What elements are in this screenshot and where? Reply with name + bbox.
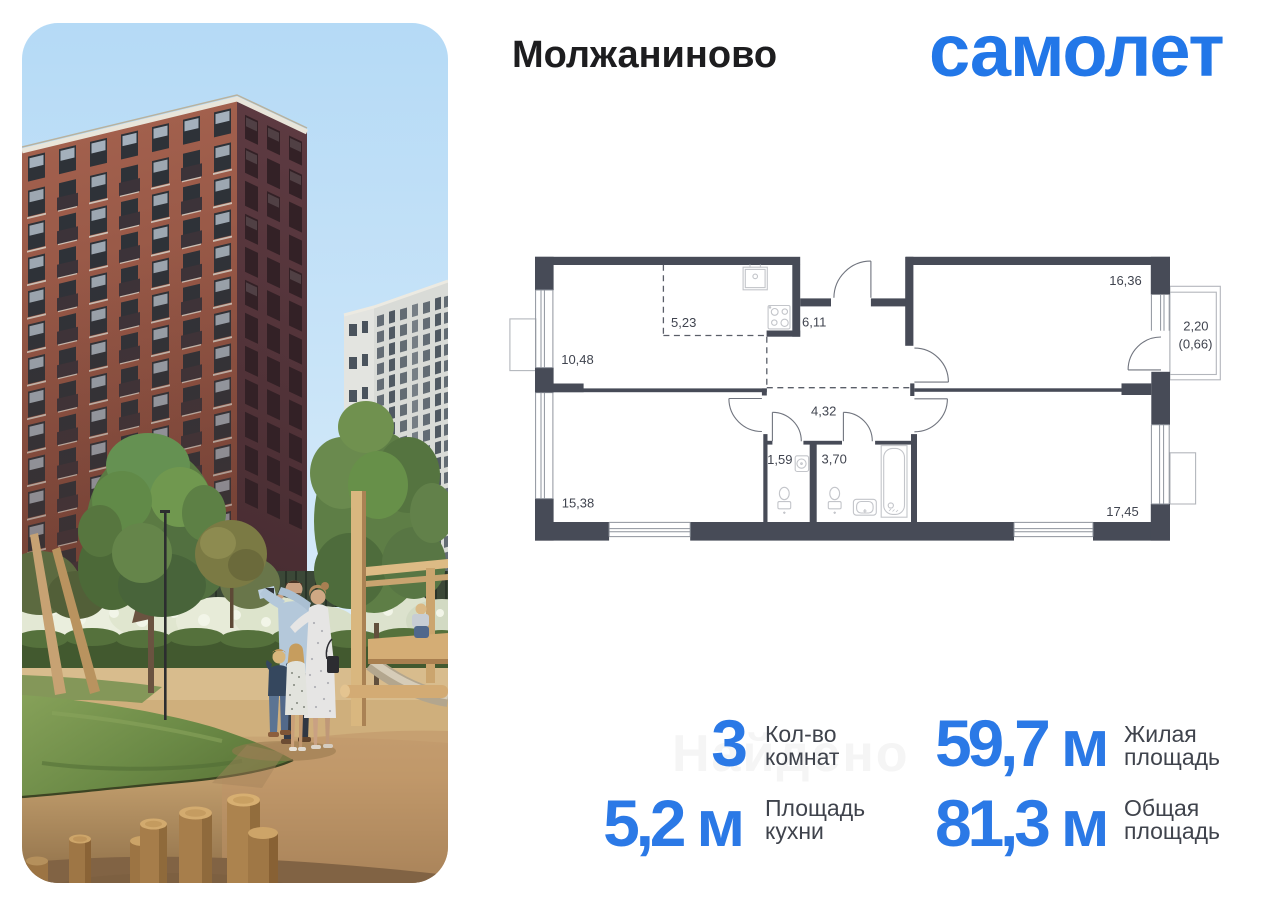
svg-text:1,59: 1,59 [767, 452, 792, 467]
svg-text:5,23: 5,23 [671, 315, 696, 330]
svg-text:10,48: 10,48 [561, 352, 594, 367]
svg-text:4,32: 4,32 [811, 404, 836, 419]
svg-text:3,70: 3,70 [822, 452, 847, 467]
svg-text:(0,66): (0,66) [1179, 337, 1213, 352]
svg-text:17,45: 17,45 [1106, 504, 1139, 519]
svg-text:6,11: 6,11 [802, 315, 826, 330]
svg-text:2,20: 2,20 [1183, 319, 1208, 334]
svg-text:16,36: 16,36 [1109, 273, 1142, 288]
svg-text:15,38: 15,38 [562, 496, 595, 511]
